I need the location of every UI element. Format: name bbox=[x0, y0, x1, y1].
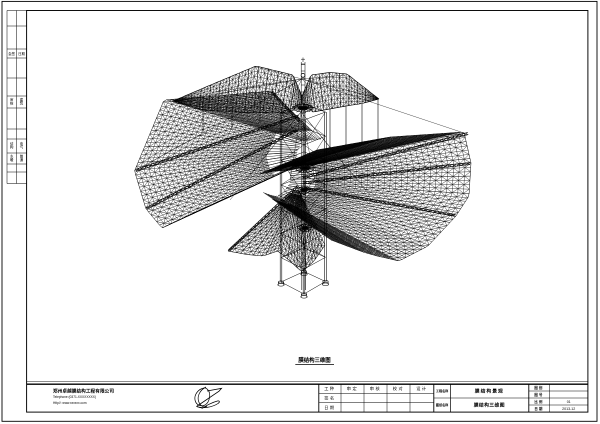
svg-text:工程名称: 工程名称 bbox=[436, 388, 449, 393]
svg-text:膜结构三维图: 膜结构三维图 bbox=[474, 402, 505, 409]
svg-text:设计: 设计 bbox=[416, 385, 427, 392]
svg-text:签名: 签名 bbox=[324, 395, 335, 402]
svg-text:Http//: www.xxxxxx.com: Http//: www.xxxxxx.com bbox=[53, 401, 87, 405]
svg-text:校对: 校对 bbox=[393, 385, 404, 392]
svg-text:审定: 审定 bbox=[347, 385, 358, 392]
svg-text:郑州卓越膜结构工程有限公司: 郑州卓越膜结构工程有限公司 bbox=[53, 387, 114, 394]
svg-text:01: 01 bbox=[567, 400, 571, 404]
svg-text:暖: 暖 bbox=[10, 157, 14, 162]
svg-text:日期: 日期 bbox=[534, 406, 543, 411]
svg-text:构: 构 bbox=[10, 145, 14, 150]
svg-text:膜结构景观: 膜结构景观 bbox=[475, 388, 504, 395]
svg-text:日期: 日期 bbox=[18, 51, 25, 56]
svg-text:膜结构三维图: 膜结构三维图 bbox=[298, 356, 331, 364]
svg-text:Telephone:(0371-XXXXXXXX): Telephone:(0371-XXXXXXXX) bbox=[53, 395, 96, 399]
svg-text:图别: 图别 bbox=[534, 385, 543, 390]
svg-text:核: 核 bbox=[10, 101, 14, 106]
svg-text:审核: 审核 bbox=[370, 385, 381, 392]
svg-text:工种: 工种 bbox=[324, 385, 335, 392]
svg-text:比例: 比例 bbox=[534, 399, 543, 404]
svg-text:2013-12: 2013-12 bbox=[562, 407, 575, 411]
svg-text:图纸名称: 图纸名称 bbox=[436, 402, 449, 407]
svg-text:会签: 会签 bbox=[8, 51, 15, 56]
svg-text:图号: 图号 bbox=[534, 392, 543, 397]
